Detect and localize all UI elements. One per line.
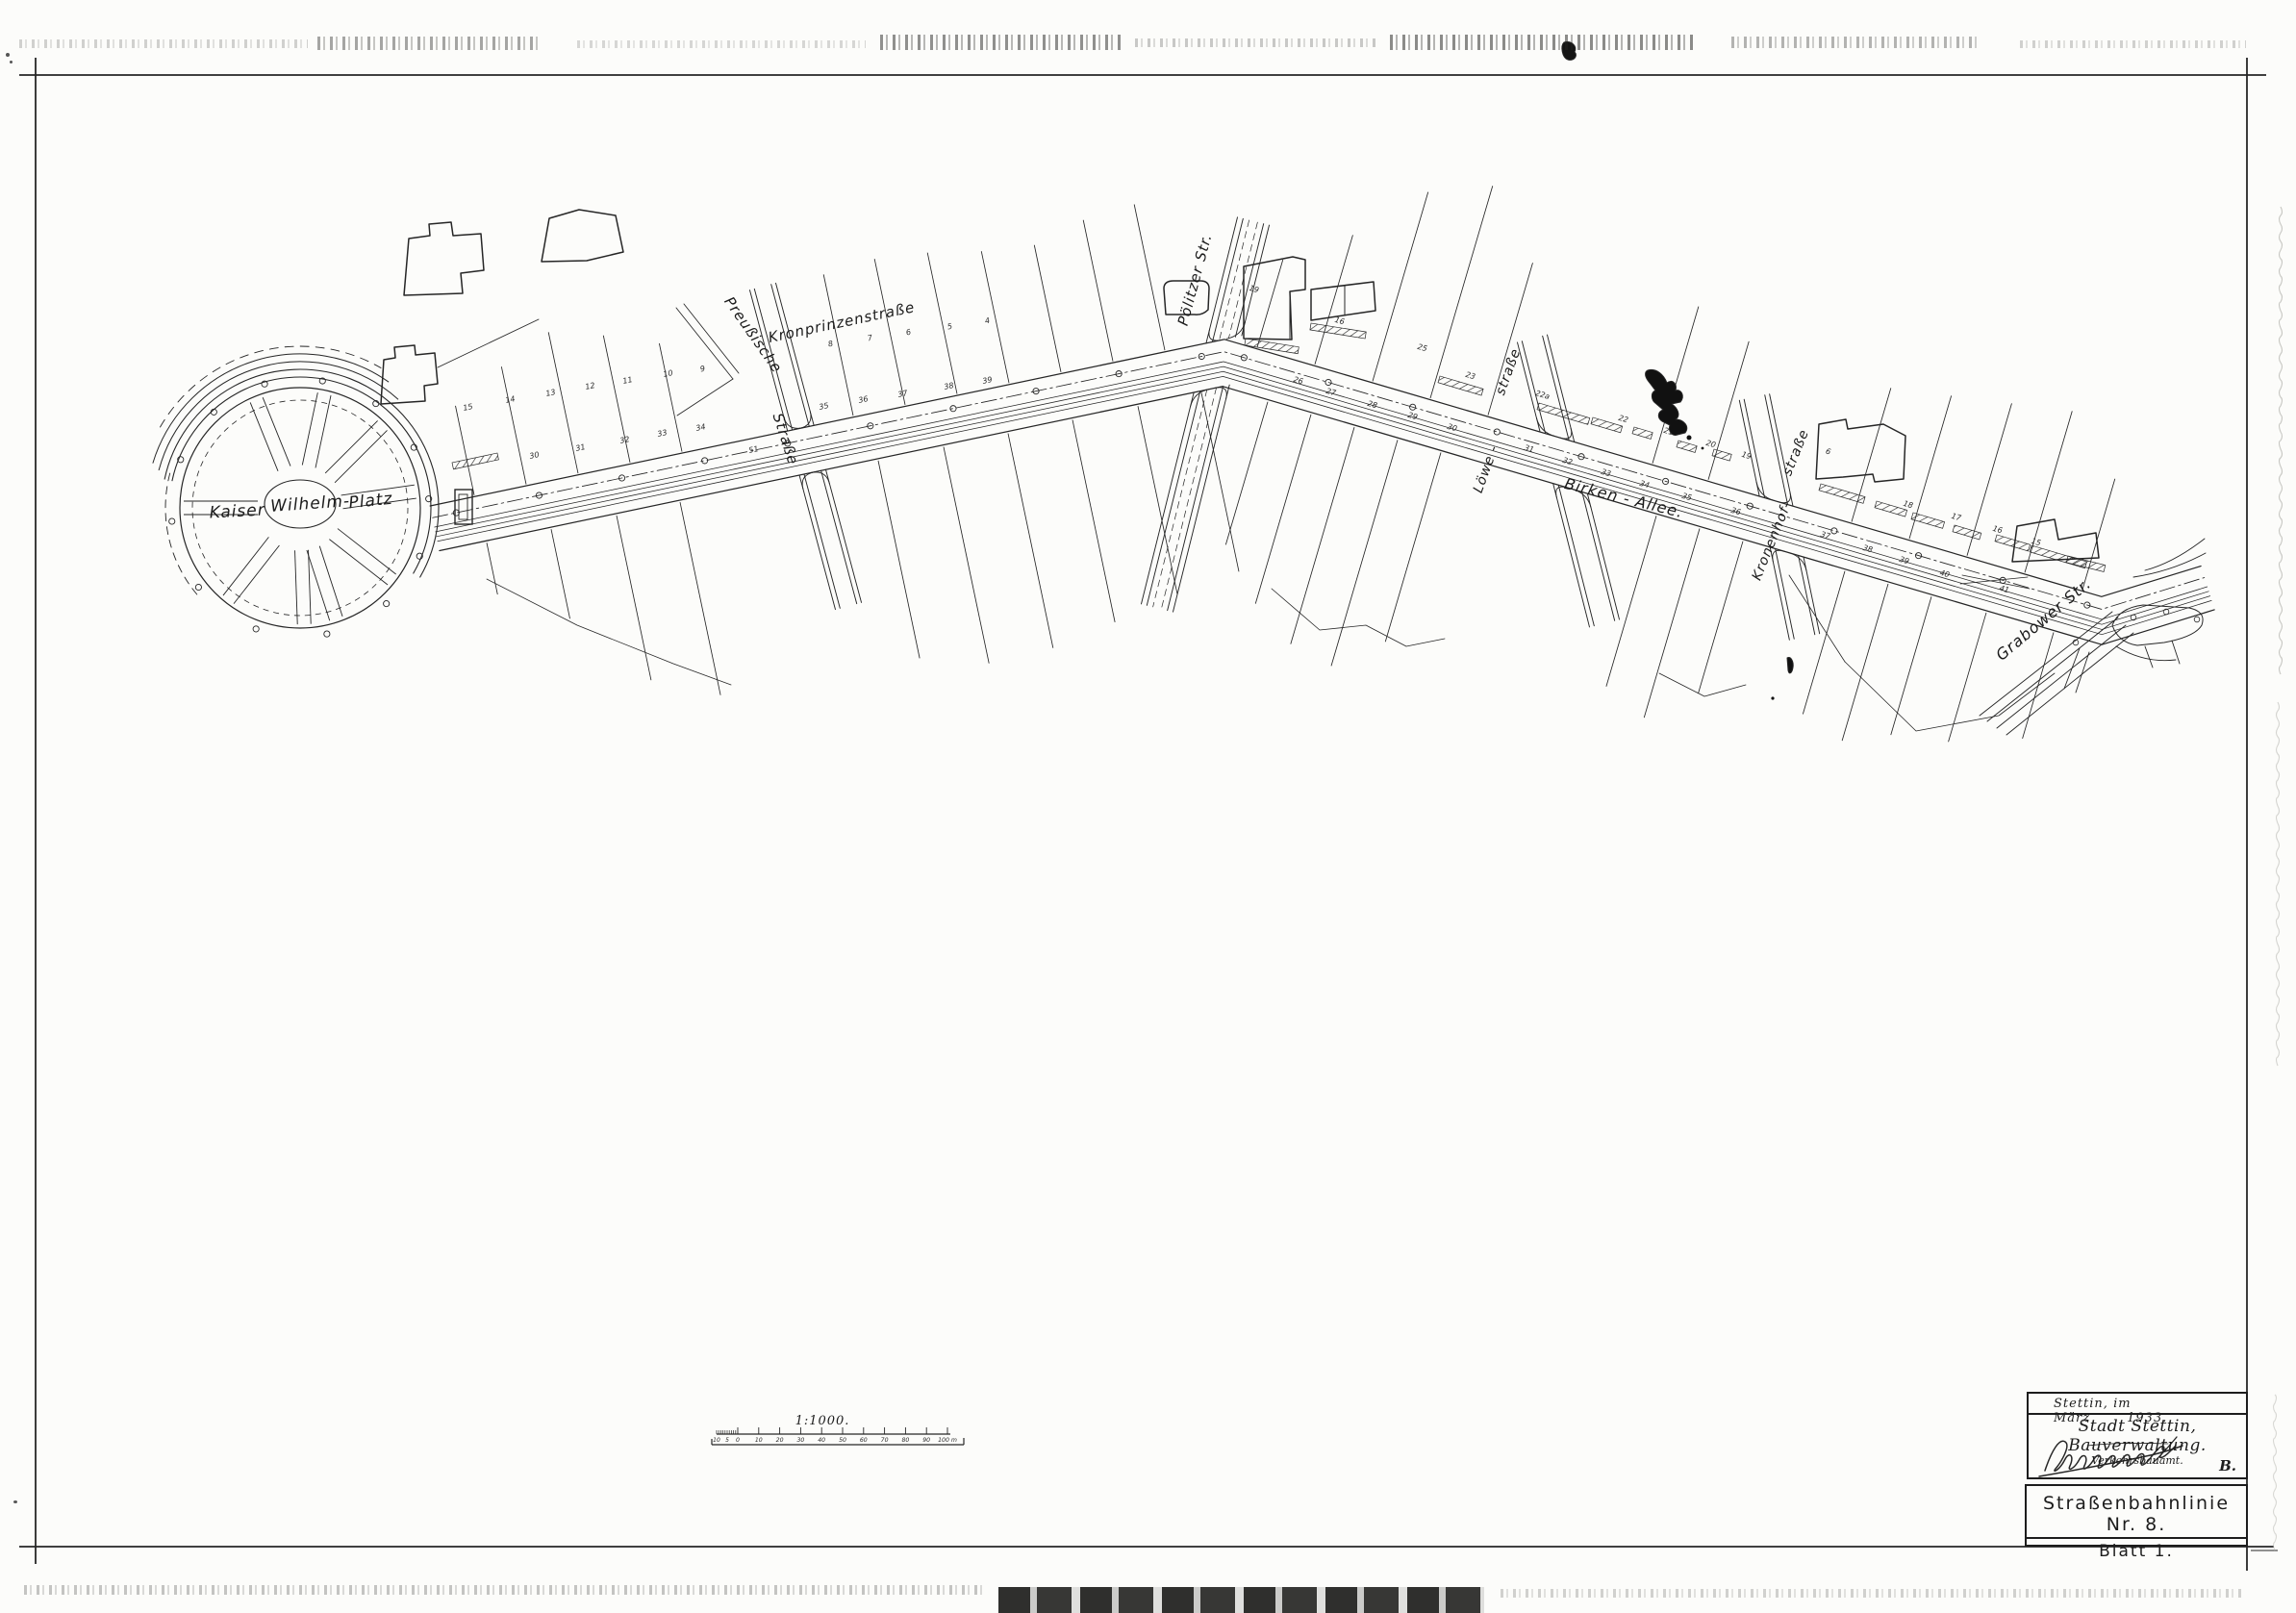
scan-artifact-bottom (24, 1585, 986, 1595)
parcel-number: 39 (982, 375, 994, 386)
parcel-number: 33 (657, 428, 669, 439)
parcel-number: 16 (1334, 315, 1346, 326)
parcel-number: 4 (984, 316, 991, 326)
street-label: Platz (348, 490, 394, 514)
parcel-number: 17 (1951, 512, 1963, 523)
scale-tick-label: 10 (713, 1437, 720, 1444)
street-label: Kronenhof- (1750, 499, 1795, 583)
parcel-number: 32 (1562, 456, 1574, 466)
parcel-number: 6 (905, 328, 912, 338)
parcel-number: 10 (663, 368, 674, 379)
parcel-number: 22 (1618, 414, 1629, 424)
parcel-number: 5 (946, 322, 953, 332)
scale-tick-label: 70 (881, 1437, 889, 1444)
scan-speck (6, 53, 10, 57)
parcel-number: 20 (1705, 439, 1717, 449)
grabower-junction (1960, 539, 2206, 735)
scale-tick-label: 30 (796, 1437, 804, 1444)
parcel-number: 31 (575, 442, 587, 453)
parcel-number: 36 (858, 394, 870, 405)
street-label: Wilhelm- (270, 491, 351, 517)
plan-title: Straßenbahnlinie Nr. 8. (2027, 1489, 2246, 1539)
parcel-number: 23 (1465, 370, 1476, 381)
parcel-number: 40 (1939, 568, 1951, 579)
parcel-number: 12 (585, 381, 596, 391)
parcel-number: 18 (1903, 499, 1914, 510)
scale-tick-label: 10 (755, 1437, 763, 1444)
parcel-number: 30 (1447, 422, 1458, 433)
authority-name: Stadt Stettin, Bauverwaltung. (2029, 1417, 2246, 1455)
scale-bar: 1050102030405060708090100 m (712, 1427, 964, 1445)
title-block-authority: Stadt Stettin, Bauverwaltung. Verkehrsba… (2027, 1413, 2248, 1479)
parcel-number: 41 (1999, 584, 2010, 594)
parcel-number: 27 (1325, 387, 1338, 398)
parcel-number: 19 (1249, 284, 1260, 294)
scale-tick-label: 90 (922, 1437, 930, 1444)
parcel-number: 35 (1681, 491, 1693, 502)
scan-speck (13, 1500, 17, 1503)
illegible-marginalia (2274, 207, 2283, 1550)
illegible-handwriting (2274, 1395, 2277, 1550)
scan-artifact-top (1390, 35, 1693, 50)
scale-ratio-label: 1:1000. (789, 1414, 856, 1428)
parcel-number: 6 (1825, 447, 1831, 457)
illegible-handwriting (2280, 207, 2283, 674)
title-block-date: Stettin, im März1933. (2027, 1392, 2248, 1414)
scale-tick-label: 0 (736, 1437, 740, 1444)
street-label: straße (1493, 346, 1524, 397)
parcel-number: 36 (1730, 506, 1742, 517)
sheet-border (19, 58, 2278, 1571)
parcel-number: 16 (1992, 524, 2004, 535)
scale-tick-label: 40 (818, 1437, 825, 1444)
parcel-number: 26 (1293, 375, 1304, 386)
parcel-number: 32 (619, 435, 631, 445)
kaiser-wilhelm-platz (153, 346, 439, 637)
parcel-number: 34 (1639, 479, 1651, 490)
office-name: Verkehrsbauamt. (2029, 1454, 2246, 1467)
scan-artifact-bottom (1501, 1589, 2241, 1598)
street-label: Pölitzer Str. (1174, 232, 1216, 328)
parcel-number: 29 (1407, 411, 1419, 421)
film-strip-artifact (998, 1587, 1484, 1613)
approval-initial: B. (2219, 1457, 2236, 1474)
parcel-number: 9 (699, 365, 706, 374)
street-label: Straße (770, 411, 802, 466)
parcel-number: 33 (1601, 467, 1612, 478)
scale-tick-label: 5 (725, 1437, 729, 1444)
ink-blots (1562, 42, 1793, 700)
street-label: Kronprinzenstraße (767, 298, 917, 346)
scan-artifact-top (577, 40, 866, 48)
parcel-number: 19 (1741, 450, 1753, 461)
parcel-number: 37 (897, 389, 910, 399)
scan-artifact-top (2020, 40, 2246, 48)
parcel-number: 14 (505, 394, 517, 405)
scale-tick-label: 60 (860, 1437, 868, 1444)
tram-pole-markers (453, 353, 2090, 608)
parcel-number: 15 (463, 402, 474, 413)
parcel-number: 28 (1367, 399, 1378, 410)
building-frontage-hatching (452, 323, 2106, 571)
parcel-number: 11 (622, 375, 634, 386)
street-labels: KaiserWilhelm-PlatzKronprinzenstraßePreu… (209, 232, 2094, 665)
main-street-tramline (430, 340, 2214, 644)
parcel-number: 7 (867, 333, 874, 342)
illegible-handwriting (2277, 702, 2280, 1066)
scale-tick-label: 100 m (938, 1437, 957, 1444)
scan-artifact-top (19, 39, 308, 48)
title-block-title: Straßenbahnlinie Nr. 8. Blatt 1. (2025, 1484, 2248, 1547)
map-canvas: KaiserWilhelm-PlatzKronprinzenstraßePreu… (0, 0, 2296, 1611)
parcel-number: 38 (944, 381, 955, 391)
parcel-number: 39 (1899, 555, 1910, 566)
scan-artifact-top (1731, 37, 1981, 48)
cross-streets (749, 217, 1819, 640)
sheet-number: Blatt 1. (2027, 1542, 2246, 1561)
scanned-map-sheet: { "title_block": { "date_line": "Stettin… (0, 0, 2296, 1611)
parcel-number: 34 (695, 422, 707, 433)
street-label: Kaiser (209, 501, 265, 523)
scan-speck (10, 61, 13, 63)
parcel-number: 51 (748, 444, 760, 455)
scale-tick-label: 50 (839, 1437, 846, 1444)
scan-artifact-top (317, 37, 539, 50)
parcel-number: 13 (545, 388, 557, 398)
scan-artifact-top (880, 35, 1121, 50)
parcel-number: 8 (827, 340, 834, 349)
parcel-number: 38 (1862, 543, 1874, 554)
scale-tick-label: 80 (901, 1437, 909, 1444)
parcel-number: 35 (819, 401, 830, 412)
scan-artifact-top (1135, 38, 1375, 47)
street-label: straße (1779, 427, 1812, 478)
parcel-number: 25 (1417, 342, 1428, 353)
scale-tick-label: 20 (776, 1437, 784, 1444)
parcel-number: 30 (529, 450, 541, 461)
